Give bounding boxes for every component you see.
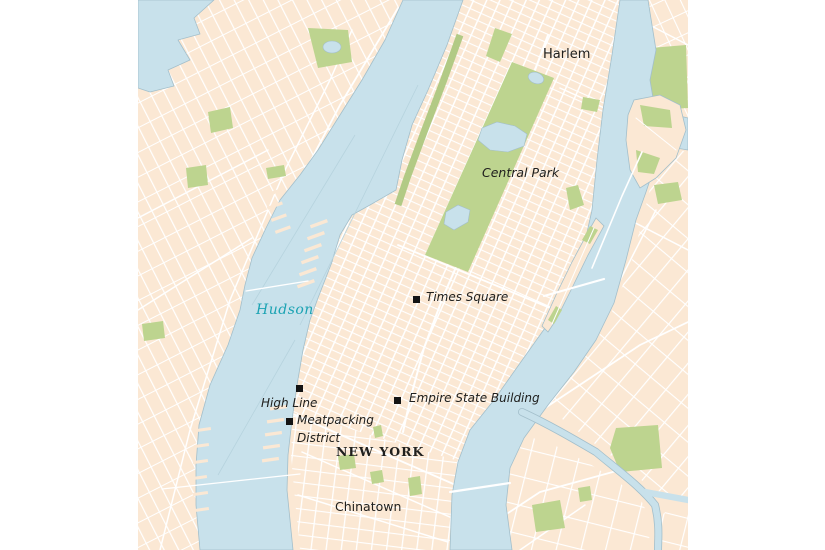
label-chinatown: Chinatown <box>335 499 401 515</box>
nj-park-3 <box>186 165 208 188</box>
nj-park-4 <box>142 321 165 341</box>
times-square-marker-icon <box>413 296 420 303</box>
high-line-marker-icon <box>296 385 303 392</box>
label-meatpacking-line1: Meatpacking <box>297 413 374 429</box>
label-meatpacking-line2: District <box>297 431 340 447</box>
label-hudson: Hudson <box>256 301 314 319</box>
tompkins-square-park <box>408 476 422 496</box>
label-new-york: NEW YORK <box>336 444 424 460</box>
village-green <box>370 470 384 484</box>
nj-pond <box>323 41 341 53</box>
brooklyn-park <box>532 500 565 532</box>
map-graphic <box>0 0 825 550</box>
label-empire-state: Empire State Building <box>409 391 540 407</box>
astoria-park <box>654 182 682 204</box>
map-canvas: Harlem Central Park Times Square Hudson … <box>0 0 825 550</box>
label-central-park: Central Park <box>482 165 559 181</box>
label-high-line: High Line <box>261 396 317 412</box>
empire-state-marker-icon <box>394 397 401 404</box>
meatpacking-marker-icon <box>286 418 293 425</box>
label-times-square: Times Square <box>426 290 508 306</box>
label-harlem: Harlem <box>543 47 590 64</box>
queens-small-park <box>578 486 592 502</box>
